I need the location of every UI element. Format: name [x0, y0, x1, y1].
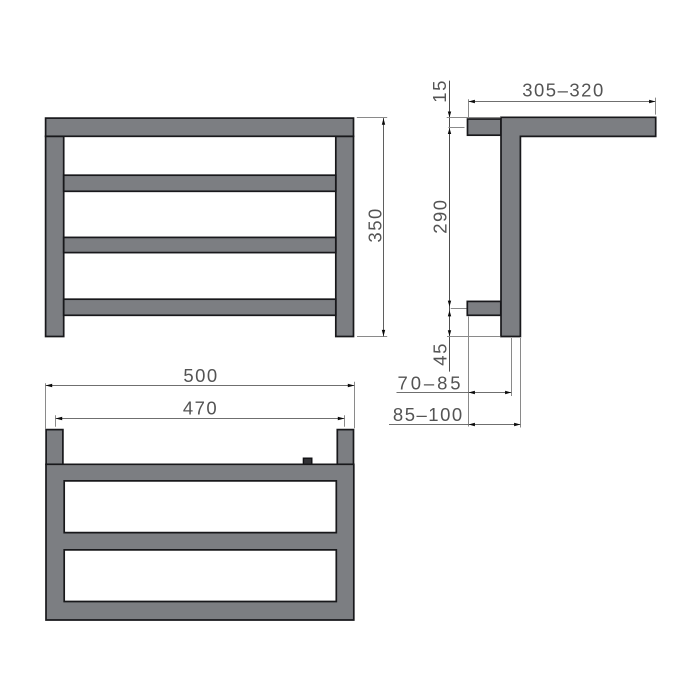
- svg-text:45: 45: [430, 342, 451, 366]
- svg-text:290: 290: [429, 198, 450, 233]
- svg-text:500: 500: [183, 365, 218, 386]
- svg-text:470: 470: [183, 397, 218, 418]
- svg-text:305–320: 305–320: [522, 79, 605, 100]
- svg-text:70–85: 70–85: [398, 373, 464, 394]
- svg-text:85–100: 85–100: [393, 404, 464, 425]
- svg-text:350: 350: [364, 207, 385, 242]
- svg-text:15: 15: [429, 79, 450, 103]
